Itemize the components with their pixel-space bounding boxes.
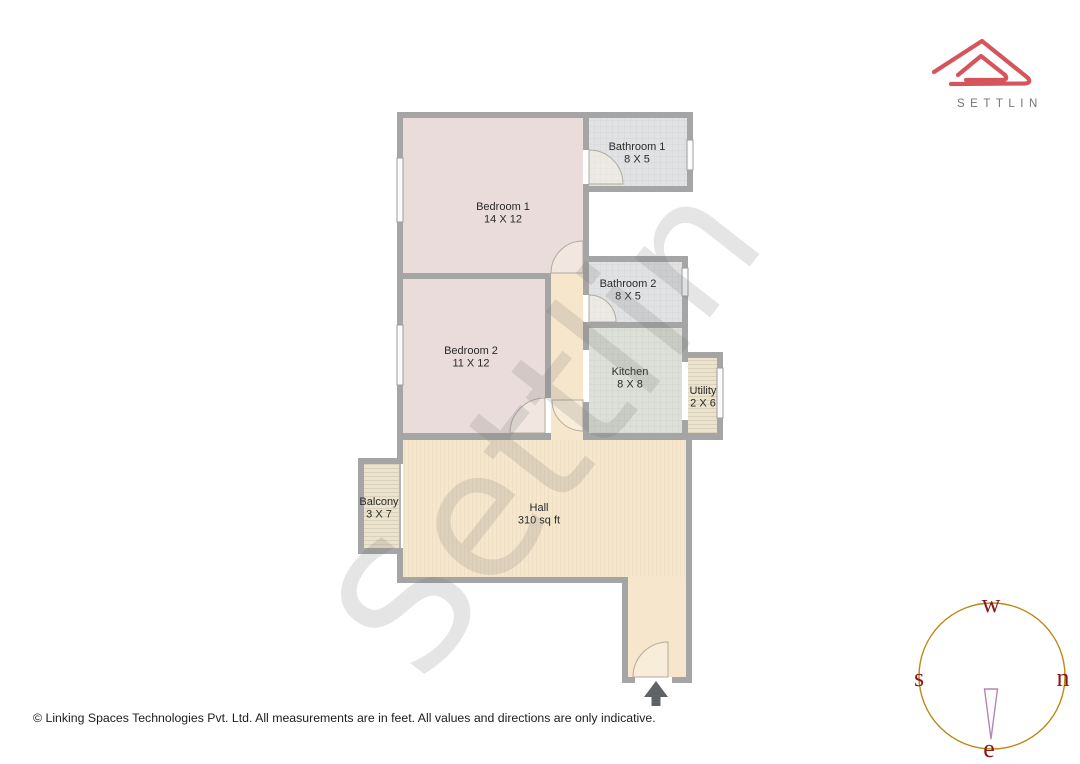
brand-roof-icon bbox=[934, 41, 1029, 84]
window-bathroom-1 bbox=[687, 140, 693, 170]
compass-letter-bottom: e bbox=[983, 734, 995, 763]
compass-needle-icon bbox=[985, 689, 998, 739]
compass-letter-top: w bbox=[982, 589, 1001, 618]
window-utility bbox=[717, 368, 723, 418]
label-bedroom-1-name: Bedroom 1 bbox=[476, 201, 530, 213]
window-bedroom-1 bbox=[397, 158, 403, 222]
floorplan-page: Bedroom 1 14 X 12 Bathroom 1 8 X 5 Bathr… bbox=[0, 0, 1080, 764]
compass-letter-right: n bbox=[1057, 663, 1070, 692]
brand-logo: SETTLIN bbox=[934, 41, 1043, 110]
entrance-arrow-icon bbox=[644, 681, 668, 706]
copyright-text: © Linking Spaces Technologies Pvt. Ltd. … bbox=[33, 711, 656, 725]
window-bedroom-2 bbox=[397, 325, 403, 385]
room-bedroom-1 bbox=[403, 118, 583, 273]
compass: w s n e bbox=[914, 589, 1070, 763]
floorplan-canvas: Bedroom 1 14 X 12 Bathroom 1 8 X 5 Bathr… bbox=[0, 0, 1080, 764]
label-bedroom-1-dims: 14 X 12 bbox=[484, 214, 522, 226]
compass-letter-left: s bbox=[914, 663, 924, 692]
brand-name: SETTLIN bbox=[957, 98, 1043, 110]
